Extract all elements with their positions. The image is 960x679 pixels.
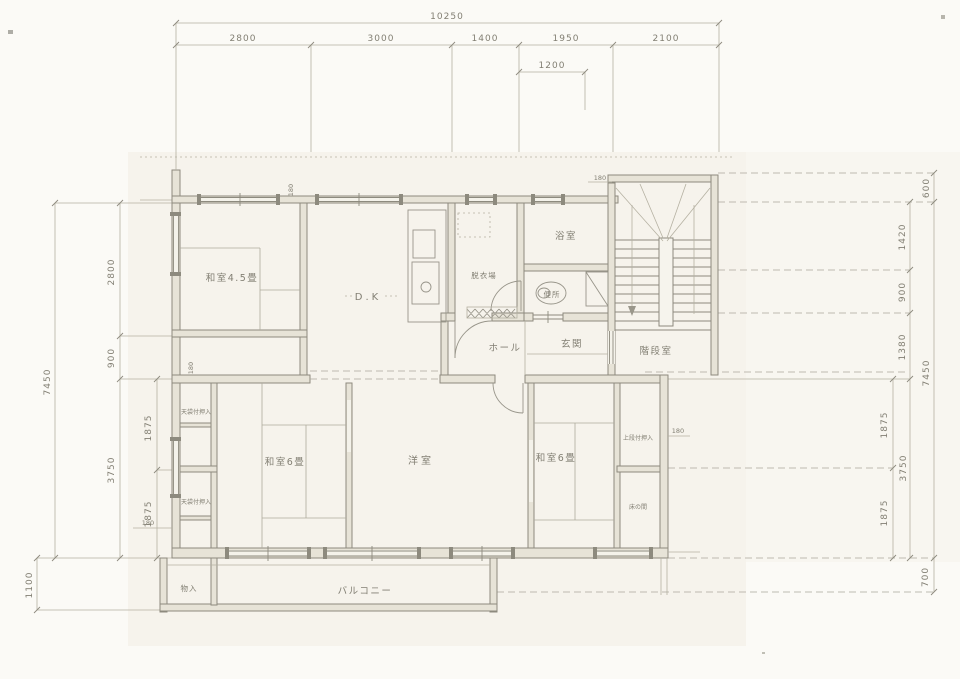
paper-background (0, 0, 960, 679)
dim-left-half-0: 1875 (144, 415, 154, 442)
wall-segment (524, 313, 533, 321)
dim-top-seg-4: 2100 (653, 34, 680, 44)
room-label-closet-jodan: 上段付押入 (623, 434, 653, 442)
wall-segment (711, 175, 718, 375)
dim-top-seg-1: 3000 (368, 34, 395, 44)
note-180-stair: 180 (594, 174, 606, 182)
room-label-tokonoma: 床の間 (629, 503, 647, 511)
dim-left-seg-0: 2800 (107, 259, 117, 286)
dim-top-seg-2: 1400 (472, 34, 499, 44)
room-label-dk: D.K (355, 292, 381, 303)
wall-segment (517, 203, 524, 313)
entry-door (608, 331, 615, 364)
note-180-right: 180 (672, 427, 684, 435)
dim-top-total: 10250 (430, 12, 464, 22)
room-label-toilet: 便所 (544, 289, 561, 299)
wall-segment (440, 375, 495, 383)
room-label-datsuiba: 脱衣場 (471, 270, 497, 280)
dim-right-half-2: 1875 (880, 500, 890, 527)
wall-segment (172, 330, 307, 337)
room-label-bath: 浴室 (555, 230, 577, 242)
stair-newel (659, 238, 673, 326)
room-label-genkan: 玄関 (561, 338, 583, 350)
wall-segment (180, 423, 211, 427)
room-label-hall: ホール (488, 343, 521, 354)
note-180-top: 180 (287, 184, 295, 196)
dim-top-sub: 1200 (539, 61, 566, 71)
wall-segment (563, 313, 608, 321)
room-label-balcony: バルコニー (338, 586, 393, 597)
dim-right-seg-2: 1380 (898, 334, 908, 361)
dim-left-total: 7450 (43, 369, 53, 396)
wall-segment (172, 375, 310, 383)
wall-segment (441, 313, 455, 321)
note-180-left-low: 180 (142, 519, 154, 527)
wall-segment (441, 321, 448, 375)
dim-right-top: 600 (922, 178, 932, 198)
dim-top-seg-0: 2800 (230, 34, 257, 44)
dim-right-seg-0: 1420 (898, 224, 908, 251)
wall-segment (300, 203, 307, 383)
dim-right-total: 7450 (922, 360, 932, 387)
room-label-closet-left-top: 天袋付押入 (181, 408, 211, 416)
wall-segment (524, 264, 608, 271)
dim-left-balcony: 1100 (25, 572, 35, 599)
room-label-western-room: 洋室 (408, 454, 434, 467)
note-180-left-mid: 180 (187, 362, 195, 374)
room-label-stairwell: 階段室 (639, 345, 672, 357)
dim-top-seg-3: 1950 (553, 34, 580, 44)
wall-segment (617, 466, 660, 472)
floor-plan-drawing: 10250 2800 3000 1400 1950 2100 1200 7450 (0, 0, 960, 679)
wall-segment (660, 375, 668, 558)
room-label-washitsu45: 和室4.5畳 (206, 272, 259, 284)
wall-segment (608, 175, 718, 182)
scanned-floor-plan-page: 10250 2800 3000 1400 1950 2100 1200 7450 (0, 0, 960, 679)
dim-right-half-1: 3750 (899, 455, 909, 482)
wall-segment (180, 466, 217, 472)
dim-right-balcony: 700 (921, 567, 931, 587)
dim-right-half-0: 1875 (880, 412, 890, 439)
room-label-storage: 物入 (181, 583, 198, 593)
room-label-closet-left-bottom: 天袋付押入 (181, 498, 211, 506)
dim-right-seg-1: 900 (898, 282, 908, 302)
dim-left-seg-1: 900 (107, 348, 117, 368)
room-label-washitsu6-left: 和室6畳 (265, 456, 306, 468)
dim-left-seg-2: 3750 (107, 457, 117, 484)
wall-segment (448, 203, 455, 321)
room-label-washitsu6-right: 和室6畳 (536, 452, 577, 464)
wall-segment (180, 516, 211, 520)
wall-segment (525, 375, 668, 383)
